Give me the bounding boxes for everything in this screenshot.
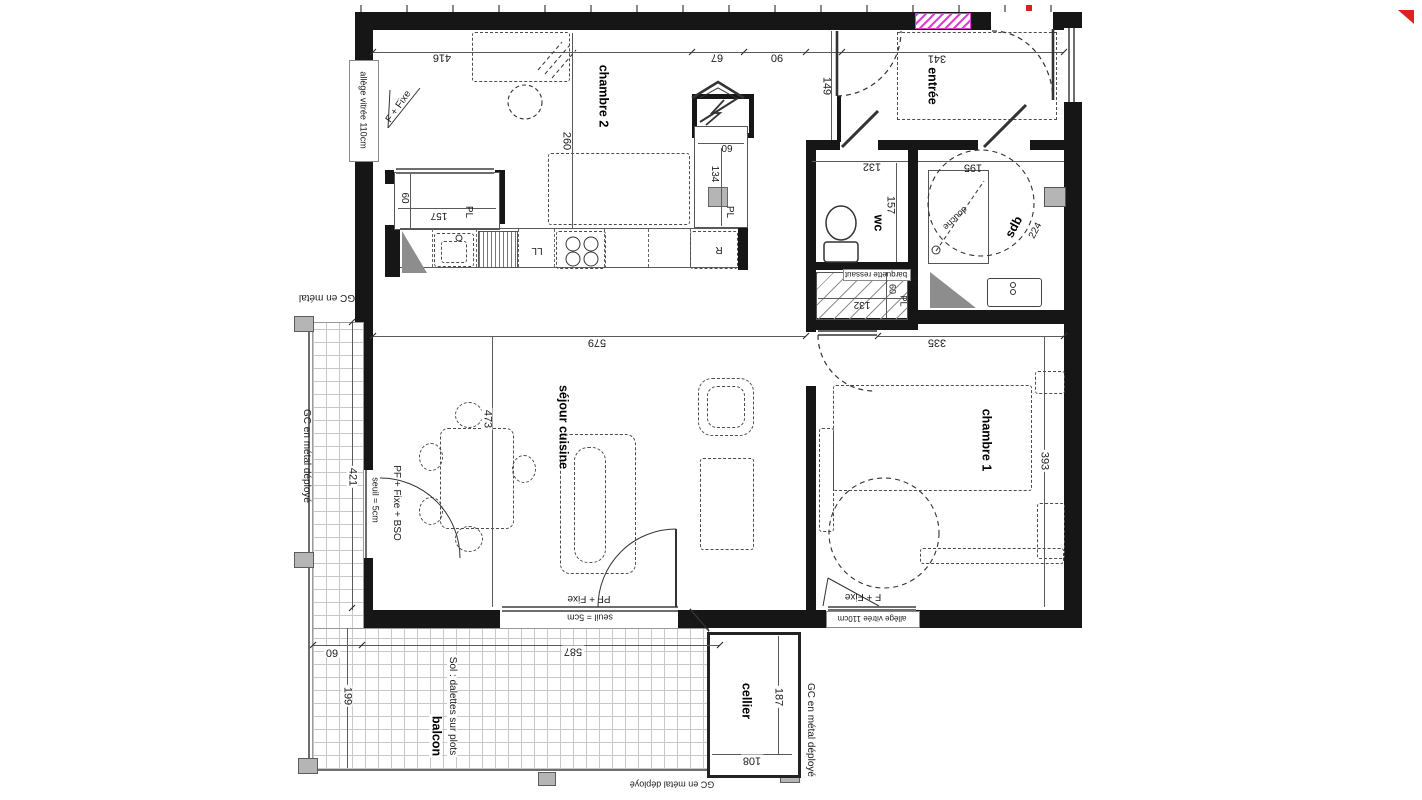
bed-chambre2 <box>548 153 690 225</box>
label-fridge: R <box>715 244 722 254</box>
chair <box>455 526 483 552</box>
right-window-glass <box>1073 28 1075 102</box>
room-label-cellier: cellier <box>740 683 753 719</box>
duct-box-sdb <box>1044 187 1066 207</box>
washbasin <box>987 278 1042 307</box>
dim-line-473 <box>492 336 493 607</box>
counter-divider <box>648 229 649 267</box>
wardrobe-chambre1 <box>920 548 1064 564</box>
annotation-gc-deploye-left: GC en métal déployé <box>301 409 311 503</box>
dim-224: 224 <box>1028 221 1045 240</box>
dim-134: 134 <box>709 166 719 183</box>
floor-plan: 416 67 90 341 149 260 60 157 60 134 132 … <box>0 0 1422 800</box>
dim-579: 579 <box>588 337 606 348</box>
annotation-gc-metal: GC en métal <box>299 292 355 302</box>
dim-341: 341 <box>928 53 946 64</box>
dim-60-placard: 60 <box>888 284 897 294</box>
nightstand <box>1035 371 1065 394</box>
annotation-seuil-left: seuil ≈ 5cm <box>371 475 380 524</box>
dim-60-balcon: 60 <box>324 647 340 658</box>
dim-line-157 <box>398 208 496 209</box>
dim-line-60 <box>410 174 411 228</box>
low-table <box>700 458 754 550</box>
room-label-entree: entrée <box>926 67 939 105</box>
dim-149: 149 <box>821 77 832 95</box>
sejour-window-glass <box>502 610 678 612</box>
annotation-sol-dalettes: Sol : dalettes sur plots <box>447 655 457 757</box>
label-pl-niche: PL <box>724 206 734 218</box>
dim-90: 90 <box>771 52 783 63</box>
chambre1-window-glass <box>828 606 916 608</box>
dim-132-wc: 132 <box>863 161 881 172</box>
dim-199: 199 <box>342 685 353 707</box>
dim-416: 416 <box>433 52 451 63</box>
annotation-gc-deploye-bottom: GC en métal déployé <box>630 780 715 789</box>
closet-sliding-door <box>396 168 494 170</box>
annotation-gc-deploye-right: GC en métal déployé <box>805 683 815 777</box>
counter-divider <box>518 229 519 267</box>
duct-box <box>708 187 728 207</box>
dim-421: 421 <box>347 466 358 488</box>
room-label-balcon: balcon <box>430 714 443 758</box>
annotation-pf-fixe: PF + Fixe <box>567 593 610 603</box>
annotation-barquette: barquette ressaut <box>845 270 907 278</box>
dim-260: 260 <box>561 132 572 150</box>
sejour-window-glass <box>502 606 678 608</box>
dim-line-134 <box>721 148 722 226</box>
wall-sdb-bottom <box>918 310 1064 324</box>
balcony-bottom-deck <box>312 628 709 770</box>
annotation-pf-fixe-bso: PF + Fixe + BSO <box>391 465 401 541</box>
balcony-post <box>294 316 314 332</box>
fridge-cabinet <box>690 231 738 269</box>
dim-line-195 <box>918 161 1064 162</box>
armchair-seat <box>707 386 745 428</box>
dishwasher-reservation <box>478 231 518 268</box>
room-label-wc: wc <box>872 215 885 232</box>
hob-cabinet <box>556 231 606 269</box>
chair <box>419 443 443 471</box>
wall-top <box>355 12 1082 30</box>
counter-divider <box>432 229 433 267</box>
chair <box>419 497 443 525</box>
wall-chambre2-entree <box>837 96 841 142</box>
wall-wc-left <box>806 140 816 332</box>
label-washer: LL <box>531 245 542 255</box>
wall-bottom <box>355 610 1082 628</box>
dim-60-closet: 60 <box>399 192 409 203</box>
label-pl-closet2: PL <box>463 206 473 218</box>
wardrobe-chambre2 <box>472 32 570 82</box>
entree-zone-outline <box>897 32 1057 120</box>
chair <box>455 402 483 428</box>
chair <box>512 455 536 483</box>
red-entrance-marker <box>1026 5 1032 11</box>
wall-wc-top <box>878 140 908 150</box>
room-label-chambre1: chambre 1 <box>980 409 993 472</box>
dim-157-closet: 157 <box>431 210 448 220</box>
entrance-opening <box>991 12 1053 30</box>
annotation-f-fixe-bottom: F + Fixe <box>845 591 881 601</box>
dim-187: 187 <box>773 686 784 708</box>
room-label-sdb: sdb <box>1003 214 1024 240</box>
wall-sdb-top <box>908 140 978 150</box>
shelf-strip <box>819 428 834 532</box>
wall-sdb-top <box>1030 140 1064 150</box>
label-pl-placard: PL <box>899 295 908 306</box>
dim-25: 25 <box>910 276 919 286</box>
dim-335: 335 <box>928 337 946 348</box>
dim-587: 587 <box>562 646 584 657</box>
wall-chambre1-left <box>806 386 816 610</box>
wall-joint-ticks <box>360 5 1072 12</box>
right-window-glass <box>1068 28 1070 102</box>
dim-132-placard: 132 <box>854 299 871 309</box>
balcony-rail-left <box>308 318 310 770</box>
dim-67: 67 <box>711 52 723 63</box>
counter-divider <box>554 229 555 267</box>
annotation-f-fixe-top: F + Fixe <box>384 89 413 125</box>
wall-kitchen-end <box>738 226 748 270</box>
annotation-allege-bottom: allège vitrée 110cm <box>838 614 907 622</box>
wall-right <box>1064 12 1082 628</box>
dim-line-260 <box>572 33 573 228</box>
left-door-threshold <box>365 470 367 558</box>
bed-chambre1 <box>833 385 1032 491</box>
annotation-seuil-bottom: seuil = 5cm <box>567 613 613 622</box>
dim-473: 473 <box>482 408 493 430</box>
dim-60-niche: 60 <box>721 142 732 152</box>
room-label-sejour: séjour cuisine <box>557 385 570 469</box>
kitchen-counter <box>400 228 738 229</box>
balcony-post <box>294 552 314 568</box>
wall-closet-jamb <box>385 170 394 184</box>
pink-wall-hatch <box>915 13 971 29</box>
dim-line-335 <box>878 336 1064 337</box>
annotation-allege-left: allège vitrée 110cm <box>359 71 368 148</box>
wall-wc-sdb <box>908 140 918 268</box>
dim-line-132 <box>812 161 908 162</box>
sofa-cushions <box>574 447 606 563</box>
dim-108: 108 <box>741 755 763 766</box>
dim-195: 195 <box>964 162 982 173</box>
dim-393: 393 <box>1039 450 1050 472</box>
dining-table <box>440 428 514 529</box>
counter-divider <box>476 229 477 267</box>
balcony-post <box>538 772 556 786</box>
dim-157-wc: 157 <box>885 196 896 214</box>
dim-line-587 <box>313 645 720 646</box>
balcony-post <box>298 758 318 774</box>
sink-bowl <box>441 241 467 263</box>
room-label-chambre2: chambre 2 <box>597 65 610 128</box>
wall-kitchen-corner <box>385 225 400 277</box>
